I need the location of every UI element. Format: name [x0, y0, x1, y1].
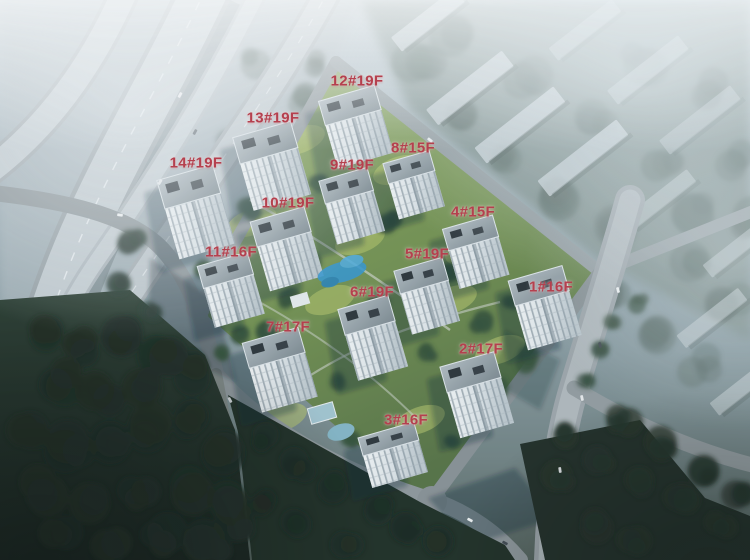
aerial-render-scene: 1#16F2#17F3#16F4#15F5#19F6#19F7#17F8#15F…: [0, 0, 750, 560]
aerial-render-graphic: [0, 0, 750, 560]
fog-overlays: [0, 0, 750, 560]
